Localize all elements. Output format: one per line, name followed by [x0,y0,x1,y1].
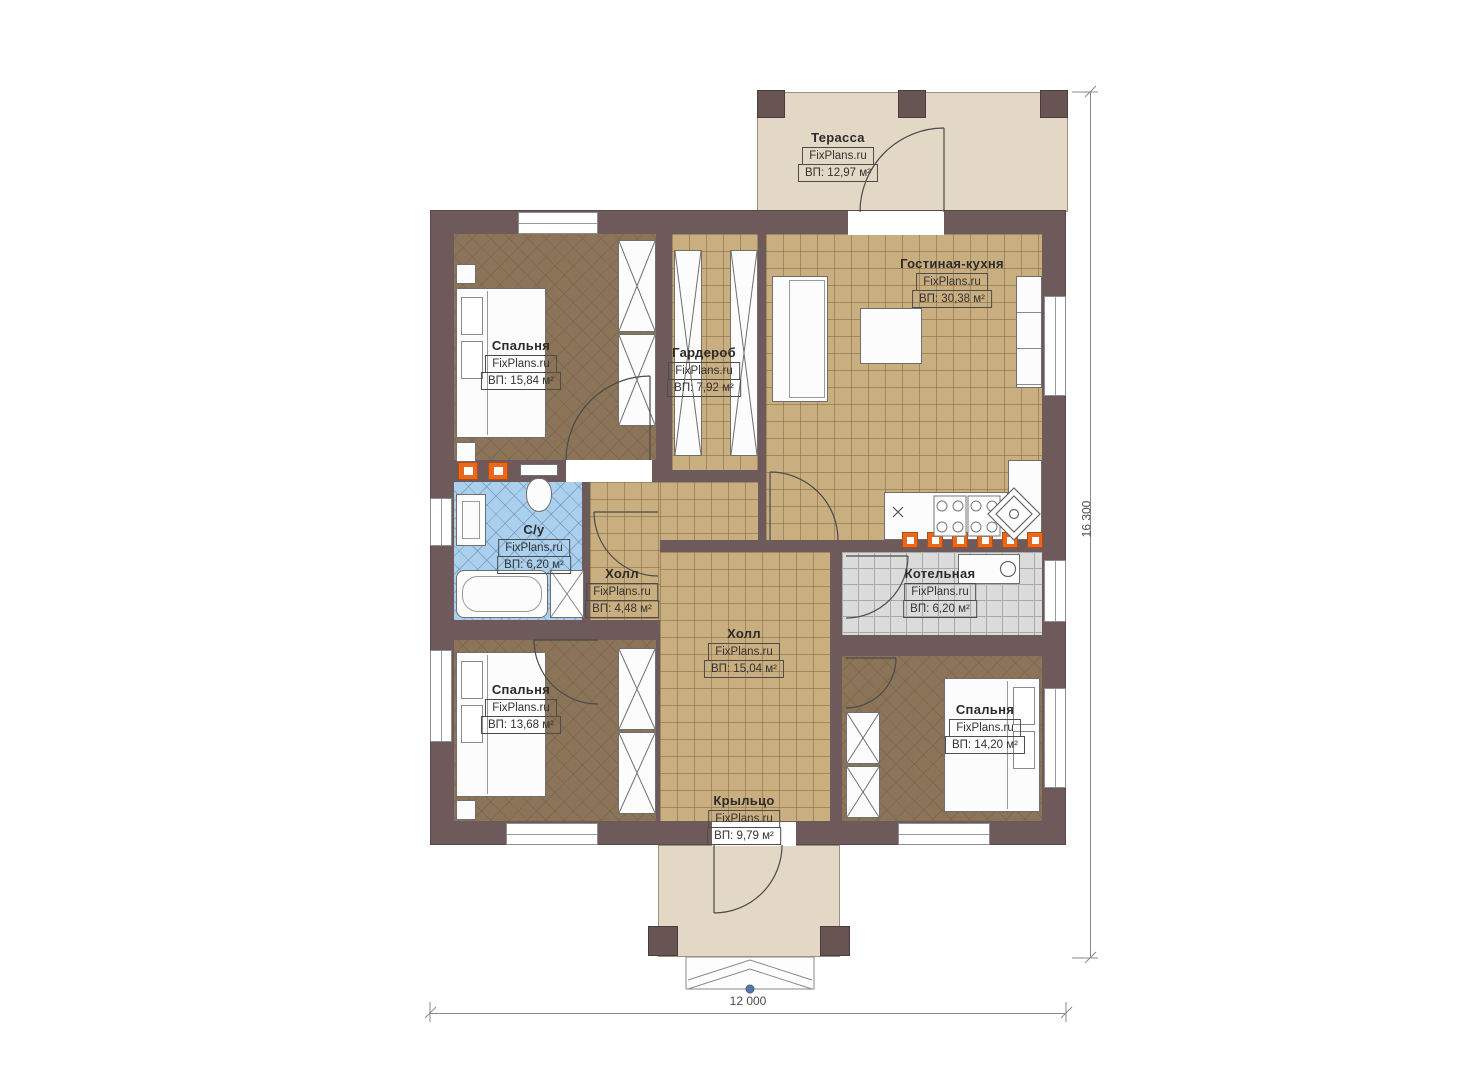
room-label-bedroom-2: Спальня FixPlans.ru ВП: 13,68 м² [481,682,561,734]
window [1044,296,1066,396]
floor-plan-canvas: Терасса FixPlans.ru ВП: 12,97 м² Гостина… [0,0,1474,1080]
fixplans-watermark: FixPlans.ru [668,362,740,380]
fixplans-watermark: FixPlans.ru [916,273,988,291]
toilet [520,464,558,476]
wardrobe-cabinet [618,240,656,332]
window [506,823,598,845]
room-label-terrace: Терасса FixPlans.ru ВП: 12,97 м² [798,130,878,182]
bathtub [456,570,548,618]
room-name: Спальня [492,338,550,353]
room-area: ВП: 7,92 м² [667,379,741,397]
room-name: Крыльцо [713,793,774,808]
room-area: ВП: 13,68 м² [481,716,561,734]
toilet-bowl [526,478,552,512]
fixplans-watermark: FixPlans.ru [485,355,557,373]
room-area: ВП: 6,20 м² [903,600,977,618]
room-area: ВП: 4,48 м² [585,600,659,618]
hall-big-floor [660,552,830,821]
dining-table [860,308,922,364]
porch-post [820,926,850,956]
porch-floor [658,845,840,957]
washing-machine [550,570,584,618]
window [1044,560,1066,622]
wall-vent-marker [1002,532,1018,548]
wall-vent-marker [488,462,508,480]
room-label-bathroom: С/у FixPlans.ru ВП: 6,20 м² [497,522,571,574]
nightstand [456,264,476,284]
wall-vent-marker [977,532,993,548]
wall-vent-marker [1027,532,1043,548]
wardrobe-cabinet [618,334,656,426]
room-area: ВП: 14,20 м² [945,736,1025,754]
wardrobe-cabinet [846,766,880,818]
room-area: ВП: 9,79 м² [707,827,781,845]
terrace-post [1040,90,1068,118]
wall-vent-marker [902,532,918,548]
wall-vent-marker [458,462,478,480]
nightstand [456,800,476,820]
wardrobe-cabinet [618,648,656,730]
sofa [772,276,828,402]
wardrobe-cabinet [846,712,880,764]
terrace-post [898,90,926,118]
room-name: Спальня [956,702,1014,717]
window [1044,688,1066,788]
dimension-line-bottom [430,1013,1066,1014]
room-label-hall-big: Холл FixPlans.ru ВП: 15,04 м² [704,626,784,678]
room-label-hall-small: Холл FixPlans.ru ВП: 4,48 м² [585,566,659,618]
door-opening [848,211,944,235]
terrace-post [757,90,785,118]
room-name: С/у [523,522,544,537]
room-name: Терасса [811,130,865,145]
hall-corridor-floor [660,482,758,540]
room-label-porch: Крыльцо FixPlans.ru ВП: 9,79 м² [707,793,781,845]
fixplans-watermark: FixPlans.ru [485,699,557,717]
room-name: Спальня [492,682,550,697]
room-name: Гостиная-кухня [900,256,1004,271]
fixplans-watermark: FixPlans.ru [708,810,780,828]
fixplans-watermark: FixPlans.ru [904,583,976,601]
wall-vent-marker [927,532,943,548]
wall-vent-marker [952,532,968,548]
room-label-bedroom-1: Спальня FixPlans.ru ВП: 15,84 м² [481,338,561,390]
room-name: Котельная [905,566,976,581]
window [430,498,452,546]
window [518,212,598,234]
wardrobe-cabinet [618,732,656,814]
bathroom-sink [456,494,486,546]
window [898,823,990,845]
door-opening [566,460,652,482]
fridge [1016,276,1042,388]
porch-post [648,926,678,956]
fixplans-watermark: FixPlans.ru [949,719,1021,737]
room-area: ВП: 15,04 м² [704,660,784,678]
room-area: ВП: 30,38 м² [912,290,992,308]
room-label-bedroom-3: Спальня FixPlans.ru ВП: 14,20 м² [945,702,1025,754]
room-name: Гардероб [672,345,736,360]
dimension-width-label: 12 000 [430,994,1066,1008]
fixplans-watermark: FixPlans.ru [708,643,780,661]
room-label-boiler: Котельная FixPlans.ru ВП: 6,20 м² [903,566,977,618]
room-area: ВП: 6,20 м² [497,556,571,574]
room-area: ВП: 12,97 м² [798,164,878,182]
room-name: Холл [727,626,761,641]
room-label-living-kitchen: Гостиная-кухня FixPlans.ru ВП: 30,38 м² [900,256,1004,308]
kitchen-counter [1008,460,1042,540]
dimension-height-label: 16 300 [1079,501,1093,538]
fixplans-watermark: FixPlans.ru [586,583,658,601]
fixplans-watermark: FixPlans.ru [498,539,570,557]
nightstand [456,442,476,462]
room-name: Холл [605,566,639,581]
room-area: ВП: 15,84 м² [481,372,561,390]
fixplans-watermark: FixPlans.ru [802,147,874,165]
room-label-wardrobe: Гардероб FixPlans.ru ВП: 7,92 м² [667,345,741,397]
window [430,650,452,742]
